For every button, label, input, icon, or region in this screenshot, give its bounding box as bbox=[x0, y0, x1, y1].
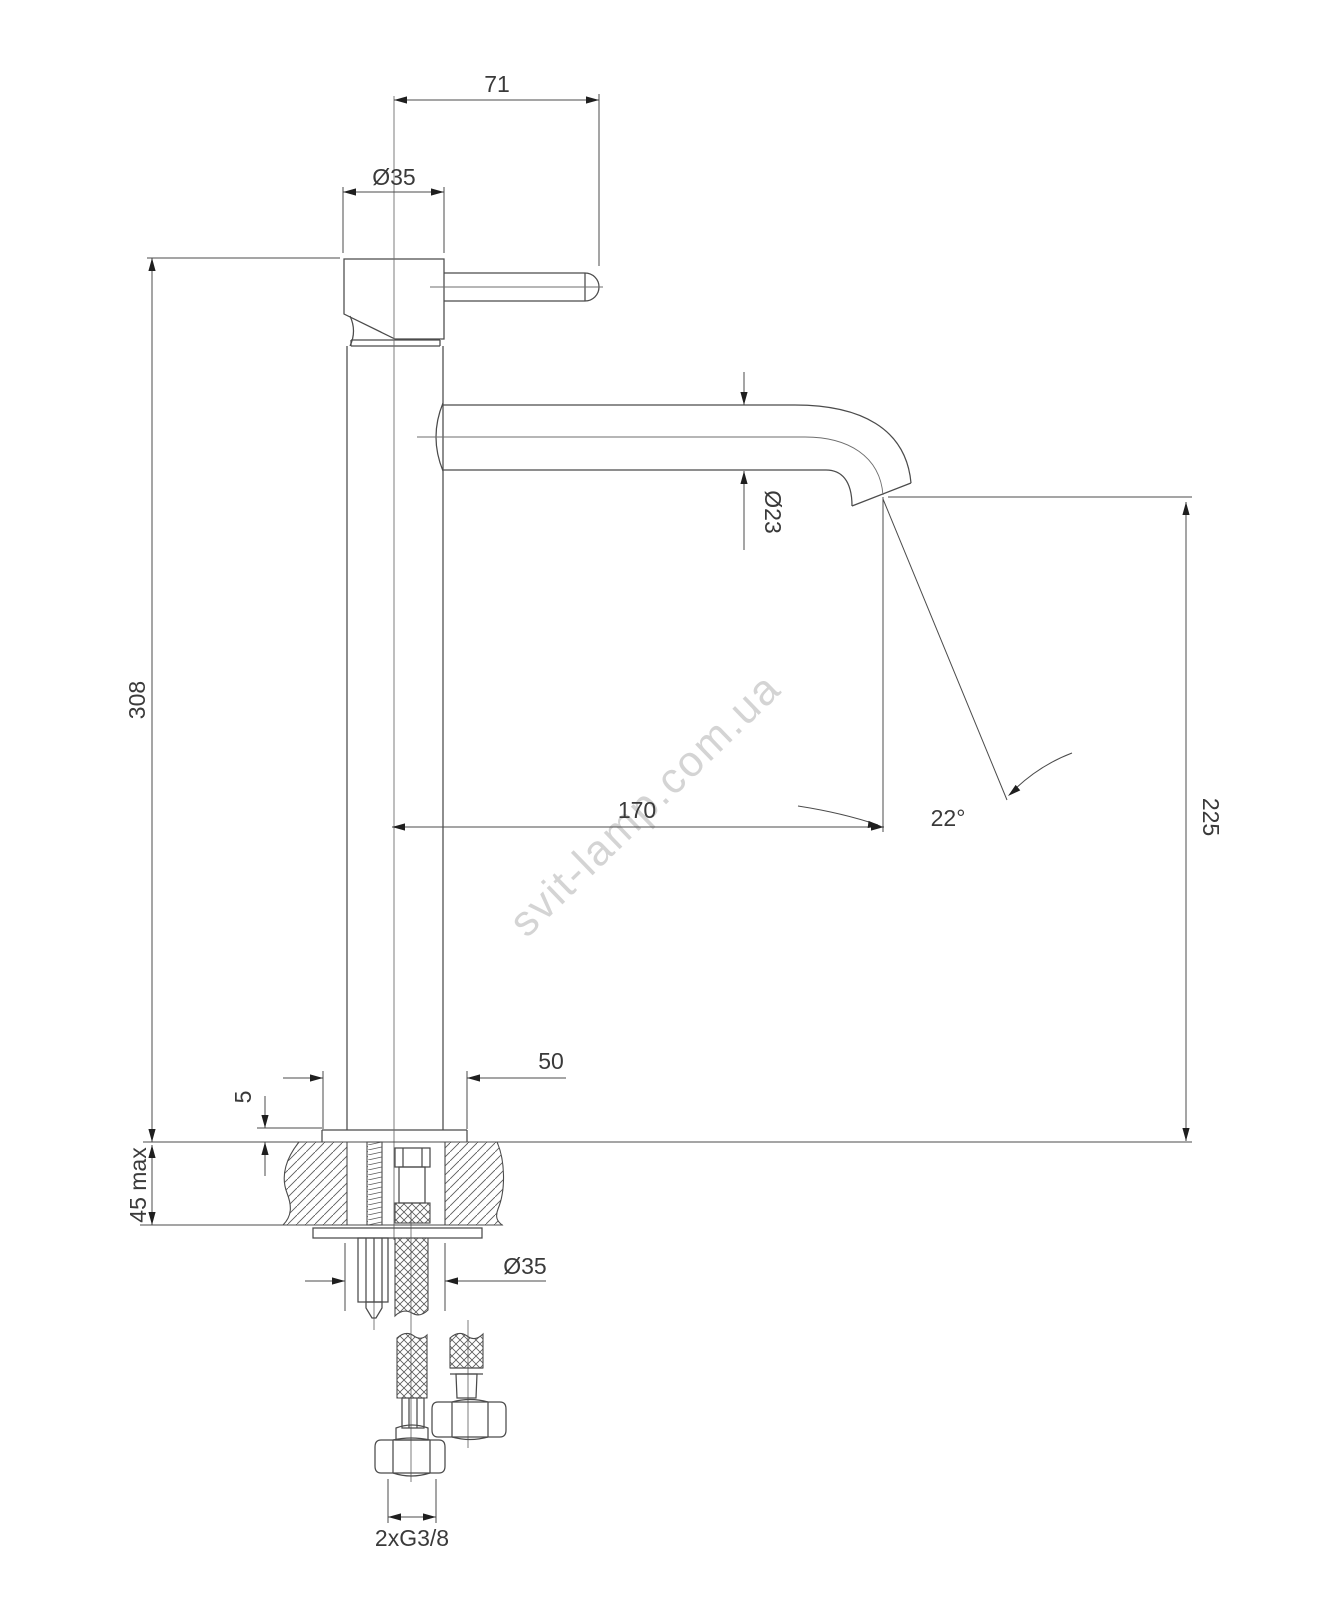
faucet-body-column bbox=[347, 346, 443, 1130]
hose-tube-in-deck bbox=[399, 1167, 425, 1203]
dim-label-45max: 45 max bbox=[125, 1147, 151, 1223]
dim-label-dia35-top: Ø35 bbox=[372, 164, 415, 190]
left-hex-nut bbox=[375, 1440, 445, 1473]
hose-nut-facets bbox=[403, 1148, 422, 1167]
technical-drawing-page: svit-lamp.com.ua bbox=[0, 0, 1322, 1600]
right-hex-nut bbox=[432, 1402, 506, 1437]
left-hose-braid-upper bbox=[395, 1238, 428, 1316]
right-hose-braid bbox=[450, 1333, 483, 1368]
dim-spout-diameter: Ø23 bbox=[740, 372, 786, 550]
mounting-hardware bbox=[313, 1228, 506, 1476]
dim-total-height: 308 bbox=[124, 258, 340, 1142]
spout-centerline bbox=[417, 437, 883, 495]
dim-hose-connection: 2xG3/8 bbox=[375, 1479, 449, 1551]
dim-label-dia23: Ø23 bbox=[760, 490, 786, 533]
dim-base-width: 50 bbox=[283, 1048, 566, 1129]
mounting-stud-nut bbox=[358, 1238, 388, 1302]
dim-body-diameter: Ø35 bbox=[343, 164, 444, 253]
dim-label-2xg38: 2xG3/8 bbox=[375, 1525, 449, 1551]
countertop-section bbox=[140, 1142, 1192, 1225]
left-ferrule-lines bbox=[409, 1398, 417, 1428]
stud-nut-lines bbox=[366, 1238, 382, 1302]
countertop-hatch-left bbox=[283, 1142, 347, 1225]
base-plate bbox=[322, 1130, 467, 1142]
dim-label-225: 225 bbox=[1198, 798, 1224, 836]
countertop-hatch-right bbox=[445, 1142, 504, 1225]
dim-label-22deg: 22° bbox=[931, 805, 966, 831]
hose-nut-in-deck bbox=[395, 1148, 430, 1167]
mounting-washer bbox=[313, 1228, 482, 1238]
dim-deck-thickness: 45 max bbox=[125, 1145, 156, 1225]
faucet-outline bbox=[322, 259, 911, 1142]
dim-label-170: 170 bbox=[618, 797, 656, 823]
dim-label-dia35-bottom: Ø35 bbox=[503, 1253, 546, 1279]
dim-label-308: 308 bbox=[124, 681, 150, 719]
faucet-technical-drawing: svit-lamp.com.ua bbox=[0, 0, 1322, 1600]
dim-label-5: 5 bbox=[230, 1091, 256, 1104]
right-hose-neck bbox=[456, 1374, 477, 1398]
dim-spout-angle: 22° bbox=[798, 499, 1072, 831]
threaded-rod-section bbox=[367, 1142, 382, 1225]
left-hex-nut-facets bbox=[393, 1438, 430, 1476]
right-hose-collar-lines bbox=[450, 1368, 483, 1374]
spout-top-edge bbox=[443, 405, 911, 483]
hose-braid-in-deck bbox=[395, 1203, 430, 1223]
right-hex-nut-facets bbox=[452, 1400, 488, 1440]
left-hose-braid-lower bbox=[397, 1333, 427, 1398]
dim-label-71: 71 bbox=[484, 71, 510, 97]
dim-handle-length: 71 bbox=[394, 71, 599, 266]
left-hose-ferrule bbox=[402, 1398, 424, 1428]
dim-label-50: 50 bbox=[538, 1048, 564, 1074]
spout-bottom-edge bbox=[443, 470, 852, 506]
collar-ring bbox=[351, 340, 440, 346]
